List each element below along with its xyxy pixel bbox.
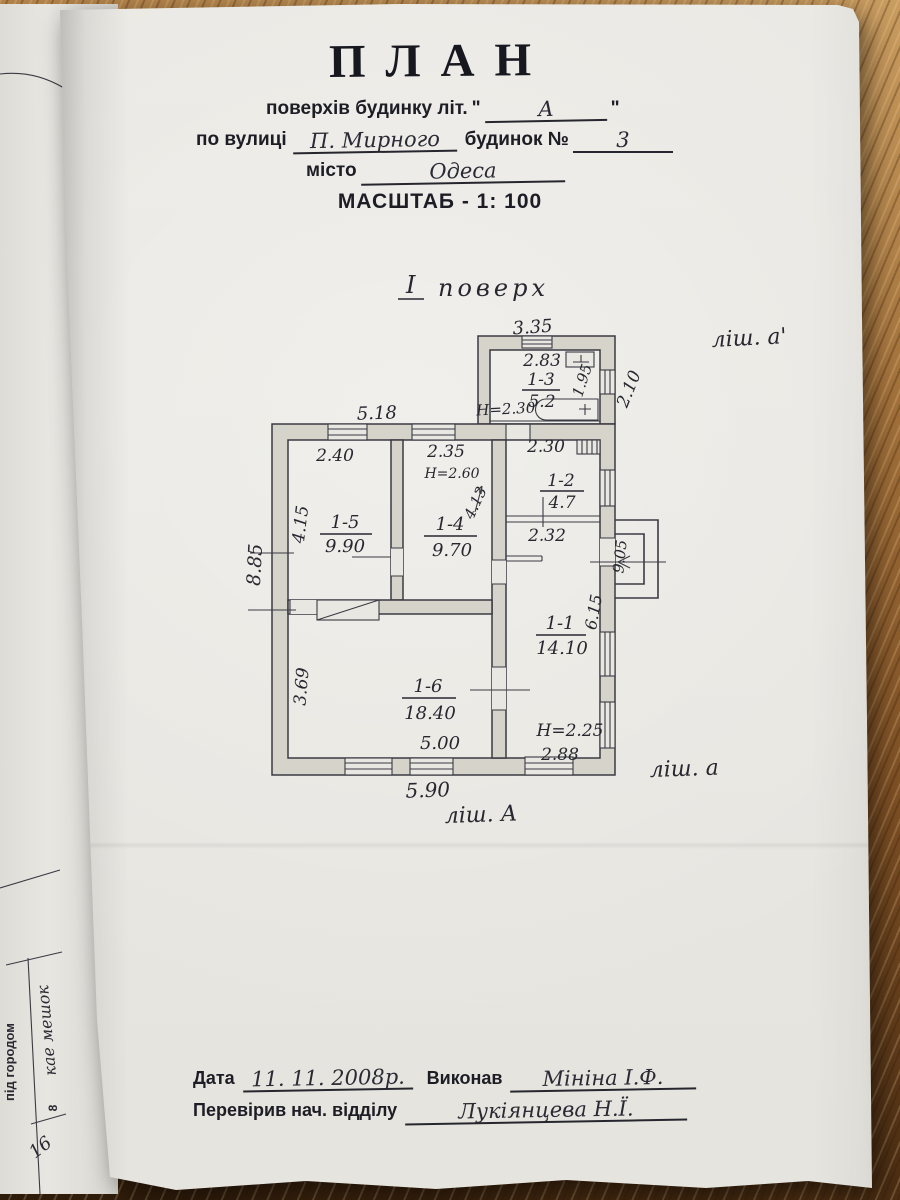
room-1-1-id: 1-1 xyxy=(546,613,575,634)
annex-labels: 3.35 2.83 1-3 5.2 H=2.30 1.95 2.10 ліш. … xyxy=(475,316,787,420)
executor-value: Мініна І.Ф. xyxy=(510,1066,696,1092)
door-opening-wall-c xyxy=(290,600,320,614)
checker-value: Лукіянцева Н.Ї. xyxy=(405,1098,687,1126)
dim-room-1-2-width: 2.30 xyxy=(526,437,565,457)
dim-room-1-4-height-note: H=2.60 xyxy=(423,466,479,482)
street-label: по вулиці xyxy=(196,129,287,153)
quote-open: " xyxy=(468,98,485,122)
door-opening-wall-b-lower xyxy=(492,667,506,710)
dim-room-1-4-width: 2.35 xyxy=(426,442,465,462)
quote-close: " xyxy=(607,98,624,122)
window-top-2 xyxy=(412,424,455,440)
plan-sheet: ПЛАН поверхів будинку літ. " А " по вули… xyxy=(0,0,900,1200)
room-1-6-area: 18.40 xyxy=(404,703,456,724)
dim-room-1-5-depth: 4.15 xyxy=(289,504,314,545)
house-number-label: будинок № xyxy=(465,129,569,153)
executor-label: Виконав xyxy=(427,1068,503,1091)
room-1-5-area: 9.90 xyxy=(325,536,365,557)
room-1-5-id: 1-5 xyxy=(331,512,360,533)
room-1-6-id: 1-6 xyxy=(414,676,443,697)
room-1-2-id: 1-2 xyxy=(547,471,574,491)
dim-room-1-4-depth: 4.13 xyxy=(460,484,491,523)
date-label: Дата xyxy=(193,1068,235,1091)
dim-annex-top: 3.35 xyxy=(512,316,553,340)
dim-right-upper: 2.10 xyxy=(613,368,646,412)
street-line: по вулиці П. Мирного будинок № 3 xyxy=(196,129,673,153)
room-1-4-id: 1-4 xyxy=(436,514,465,535)
city-value: Одеса xyxy=(360,159,564,186)
partition-under-hall xyxy=(506,556,542,561)
date-value: 11. 11. 2008р. xyxy=(242,1067,412,1093)
signature-line-2: Перевірив нач. відділу Лукіянцева Н.Ї. xyxy=(193,1100,687,1123)
door-opening-wall-a xyxy=(391,548,403,576)
room-1-1-area: 14.10 xyxy=(536,638,588,659)
room-1-3-id: 1-3 xyxy=(527,370,554,390)
window-right-2 xyxy=(600,632,615,676)
signature-line-1: Дата 11. 11. 2008р. Виконав Мініна І.Ф. xyxy=(193,1068,696,1091)
bathtub-tap-mark xyxy=(579,404,591,415)
street-value: П. Мирного xyxy=(292,129,456,155)
window-right-1 xyxy=(600,470,615,506)
dim-room-1-1-width: 2.88 xyxy=(540,745,579,765)
window-top-1 xyxy=(328,424,367,440)
dim-room-1-5-width: 2.40 xyxy=(315,446,354,466)
partition-under-room-1-2 xyxy=(506,516,600,522)
lit-main-note: ліш. А xyxy=(444,801,517,829)
lit-right-note: ліш. а xyxy=(649,756,719,783)
scale-label: МАСШТАБ - 1: 100 xyxy=(100,190,780,214)
dim-main-top: 5.18 xyxy=(356,402,397,424)
floor-roman-numeral: І xyxy=(405,271,416,299)
window-bottom-2 xyxy=(410,758,453,775)
storeys-label: поверхів будинку літ. xyxy=(266,98,468,122)
storeys-value: А xyxy=(484,98,606,123)
dim-annex-height-note: H=2.30 xyxy=(475,398,536,419)
window-bottom-1 xyxy=(345,758,392,775)
photo-scene: під городом кае мешок 8 16 ПЛАН поверхів… xyxy=(0,0,900,1200)
room-1-2-area: 4.7 xyxy=(547,493,575,513)
floor-plan-drawing: І поверх xyxy=(235,258,795,843)
city-line: місто Одеса xyxy=(306,160,565,184)
door-opening-wall-b-upper xyxy=(492,560,506,584)
checker-label: Перевірив нач. відділу xyxy=(193,1100,397,1123)
dim-hall-width: 2.32 xyxy=(527,526,566,546)
document-title: ПЛАН xyxy=(100,31,780,91)
dim-room-1-6-width: 5.00 xyxy=(420,733,460,754)
house-number-value: 3 xyxy=(573,130,673,153)
floor-word: поверх xyxy=(438,274,549,302)
dim-left-total: 8.85 xyxy=(243,543,267,586)
dim-annex-width: 2.83 xyxy=(522,351,561,371)
dim-room-1-6-depth: 3.69 xyxy=(290,667,313,707)
dim-main-bottom: 5.90 xyxy=(405,777,451,803)
dim-right-total: 9.05 xyxy=(609,539,630,574)
dim-room-1-1-height-note: H=2.25 xyxy=(536,721,604,741)
annex-right-window xyxy=(600,370,615,394)
city-label: місто xyxy=(306,160,357,184)
floor-title: І поверх xyxy=(398,271,549,302)
room-1-4-area: 9.70 xyxy=(432,540,472,561)
lit-annex-note: ліш. а' xyxy=(711,324,787,353)
storeys-line: поверхів будинку літ. " А " xyxy=(266,98,624,122)
